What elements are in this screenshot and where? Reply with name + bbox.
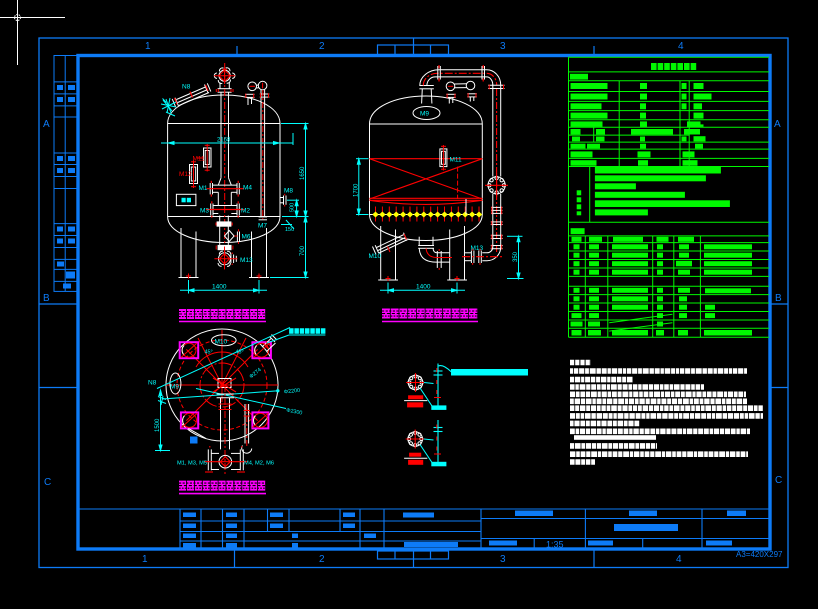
svg-text:M2: M2 [241, 208, 250, 215]
svg-text:N8: N8 [148, 380, 157, 387]
svg-text:M6: M6 [242, 234, 251, 241]
svg-text:1:35: 1:35 [546, 540, 564, 550]
svg-text:3: 3 [500, 41, 506, 52]
svg-text:2: 2 [319, 41, 325, 52]
svg-text:M9: M9 [420, 111, 429, 118]
svg-text:M1, M3, M5: M1, M3, M5 [177, 460, 207, 466]
svg-text:C: C [44, 477, 51, 488]
svg-text:B: B [775, 293, 782, 304]
svg-text:700: 700 [300, 245, 306, 256]
svg-text:1500: 1500 [155, 418, 161, 432]
svg-text:M3: M3 [200, 208, 209, 215]
svg-text:B: B [43, 293, 50, 304]
svg-text:M11: M11 [450, 157, 463, 164]
svg-text:M4: M4 [243, 185, 252, 192]
svg-text:2: 2 [319, 554, 325, 565]
svg-text:M8: M8 [284, 188, 293, 195]
svg-text:150: 150 [285, 227, 294, 233]
svg-text:M10: M10 [215, 339, 228, 346]
svg-text:M1: M1 [199, 185, 208, 192]
svg-text:M9: M9 [170, 384, 179, 391]
svg-text:M12: M12 [179, 171, 192, 178]
svg-text:M10: M10 [369, 253, 382, 260]
svg-text:M4, M2, M6: M4, M2, M6 [244, 460, 274, 466]
svg-text:M13: M13 [240, 257, 253, 264]
svg-text:1: 1 [142, 554, 148, 565]
svg-text:M7: M7 [258, 223, 267, 230]
svg-text:A: A [43, 119, 50, 130]
svg-text:1400: 1400 [212, 284, 227, 291]
svg-text:N8: N8 [182, 84, 191, 91]
svg-text:45°: 45° [205, 350, 213, 356]
svg-text:1400: 1400 [416, 284, 431, 291]
svg-text:3: 3 [500, 554, 506, 565]
svg-text:350: 350 [513, 251, 519, 262]
svg-text:2168: 2168 [217, 138, 231, 144]
svg-text:C: C [775, 475, 782, 486]
svg-text:4: 4 [678, 41, 684, 52]
svg-text:1700: 1700 [353, 183, 359, 197]
svg-text:4: 4 [676, 554, 682, 565]
svg-text:500: 500 [290, 203, 296, 212]
svg-text:A: A [774, 119, 781, 130]
svg-text:1: 1 [145, 41, 151, 52]
svg-text:A3=420X297: A3=420X297 [736, 550, 783, 559]
svg-text:1650: 1650 [300, 166, 306, 180]
